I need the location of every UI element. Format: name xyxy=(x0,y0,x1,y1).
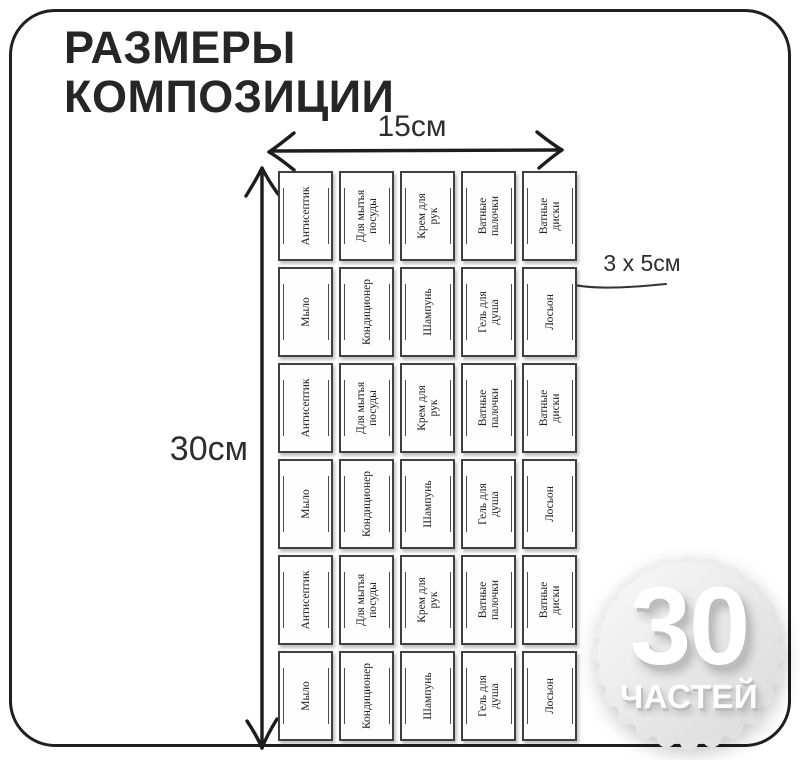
label-rule xyxy=(450,572,451,628)
label-text: Гель для душа xyxy=(476,291,500,333)
label-rule xyxy=(527,380,528,436)
label-rule xyxy=(572,188,573,244)
label-card: Мыло xyxy=(278,459,333,549)
label-rule xyxy=(328,380,329,436)
label-card: Гель для душа xyxy=(461,459,516,549)
label-text: Шампунь xyxy=(421,288,433,335)
label-rule xyxy=(466,380,467,436)
label-rule xyxy=(389,572,390,628)
label-card: Кондиционер xyxy=(339,267,394,357)
label-rule xyxy=(511,380,512,436)
label-text: Крем для рук xyxy=(415,385,439,431)
label-card: Лосьон xyxy=(522,459,577,549)
label-text: Для мытья посуды xyxy=(354,190,378,242)
label-rule xyxy=(389,476,390,532)
label-rule xyxy=(389,668,390,724)
cell-dimension-label: 3 х 5см xyxy=(582,250,702,277)
label-rule xyxy=(466,572,467,628)
label-rule xyxy=(466,188,467,244)
label-card: Ватные палочки xyxy=(461,171,516,261)
label-text: Антисептик xyxy=(299,571,311,630)
label-text: Лосьон xyxy=(543,678,555,714)
label-rule xyxy=(527,284,528,340)
label-card: Ватные палочки xyxy=(461,363,516,453)
label-rule xyxy=(389,284,390,340)
label-rule xyxy=(344,668,345,724)
label-rule xyxy=(405,284,406,340)
label-card: Мыло xyxy=(278,267,333,357)
label-text: Ватные диски xyxy=(537,582,561,619)
label-rule xyxy=(344,188,345,244)
label-text: Крем для рук xyxy=(415,193,439,239)
label-card: Гель для душа xyxy=(461,651,516,741)
label-text: Шампунь xyxy=(421,672,433,719)
label-rule xyxy=(527,572,528,628)
label-card: Крем для рук xyxy=(400,171,455,261)
label-text: Ватные палочки xyxy=(476,580,500,620)
label-card: Шампунь xyxy=(400,459,455,549)
label-text: Ватные палочки xyxy=(476,196,500,236)
label-text: Для мытья посуды xyxy=(354,574,378,626)
label-rule xyxy=(466,668,467,724)
label-card: Гель для душа xyxy=(461,267,516,357)
label-rule xyxy=(283,380,284,436)
label-rule xyxy=(283,668,284,724)
label-rule xyxy=(450,380,451,436)
label-card: Крем для рук xyxy=(400,363,455,453)
label-rule xyxy=(527,476,528,532)
label-card: Антисептик xyxy=(278,555,333,645)
label-rule xyxy=(527,188,528,244)
badge-number: 30 xyxy=(630,582,748,672)
label-rule xyxy=(450,284,451,340)
label-text: Кондиционер xyxy=(360,279,372,345)
label-rule xyxy=(450,188,451,244)
label-card: Антисептик xyxy=(278,171,333,261)
label-rule xyxy=(344,476,345,532)
label-card: Кондиционер xyxy=(339,459,394,549)
label-rule xyxy=(344,572,345,628)
label-rule xyxy=(344,380,345,436)
label-rule xyxy=(466,284,467,340)
label-rule xyxy=(405,668,406,724)
label-card: Шампунь xyxy=(400,651,455,741)
label-text: Шампунь xyxy=(421,480,433,527)
width-dimension-label: 15см xyxy=(312,110,512,144)
label-card: Шампунь xyxy=(400,267,455,357)
label-rule xyxy=(283,188,284,244)
label-rule xyxy=(283,284,284,340)
label-text: Лосьон xyxy=(543,486,555,522)
label-rule xyxy=(527,668,528,724)
label-rule xyxy=(511,188,512,244)
label-card: Мыло xyxy=(278,651,333,741)
label-text: Крем для рук xyxy=(415,577,439,623)
height-dimension-label: 30см xyxy=(140,430,248,469)
label-card: Лосьон xyxy=(522,267,577,357)
label-rule xyxy=(511,668,512,724)
label-rule xyxy=(344,284,345,340)
label-text: Мыло xyxy=(299,681,311,710)
labels-grid: Антисептик Для мытья посуды Крем для рук… xyxy=(278,171,577,741)
label-card: Для мытья посуды xyxy=(339,171,394,261)
label-text: Ватные палочки xyxy=(476,388,500,428)
label-rule xyxy=(450,668,451,724)
label-card: Для мытья посуды xyxy=(339,363,394,453)
label-rule xyxy=(450,476,451,532)
label-text: Мыло xyxy=(299,297,311,326)
page-title: РАЗМЕРЫ КОМПОЗИЦИИ xyxy=(64,24,394,121)
label-text: Ватные диски xyxy=(537,198,561,235)
label-rule xyxy=(572,284,573,340)
label-rule xyxy=(466,476,467,532)
label-text: Гель для душа xyxy=(476,483,500,525)
label-rule xyxy=(283,476,284,532)
label-rule xyxy=(405,380,406,436)
label-card: Лосьон xyxy=(522,651,577,741)
label-text: Лосьон xyxy=(543,294,555,330)
label-text: Гель для душа xyxy=(476,675,500,717)
label-text: Антисептик xyxy=(299,379,311,438)
label-rule xyxy=(572,572,573,628)
label-rule xyxy=(511,284,512,340)
label-text: Ватные диски xyxy=(537,390,561,427)
label-rule xyxy=(511,572,512,628)
label-rule xyxy=(328,476,329,532)
label-rule xyxy=(405,572,406,628)
label-text: Кондиционер xyxy=(360,471,372,537)
label-rule xyxy=(328,668,329,724)
label-rule xyxy=(283,572,284,628)
label-rule xyxy=(405,188,406,244)
label-text: Антисептик xyxy=(299,187,311,246)
label-text: Мыло xyxy=(299,489,311,518)
label-card: Ватные диски xyxy=(522,171,577,261)
label-rule xyxy=(328,284,329,340)
label-rule xyxy=(511,476,512,532)
label-card: Ватные диски xyxy=(522,555,577,645)
label-rule xyxy=(328,572,329,628)
label-rule xyxy=(389,188,390,244)
label-card: Антисептик xyxy=(278,363,333,453)
label-card: Ватные палочки xyxy=(461,555,516,645)
label-card: Крем для рук xyxy=(400,555,455,645)
label-rule xyxy=(572,476,573,532)
label-card: Кондиционер xyxy=(339,651,394,741)
label-rule xyxy=(405,476,406,532)
label-rule xyxy=(328,188,329,244)
label-rule xyxy=(572,380,573,436)
label-card: Ватные диски xyxy=(522,363,577,453)
label-rule xyxy=(389,380,390,436)
label-text: Для мытья посуды xyxy=(354,382,378,434)
parts-count-badge: 30 ЧАСТЕЙ xyxy=(582,546,796,760)
badge-caption: ЧАСТЕЙ xyxy=(620,678,758,716)
label-text: Кондиционер xyxy=(360,663,372,729)
label-card: Для мытья посуды xyxy=(339,555,394,645)
label-rule xyxy=(572,668,573,724)
